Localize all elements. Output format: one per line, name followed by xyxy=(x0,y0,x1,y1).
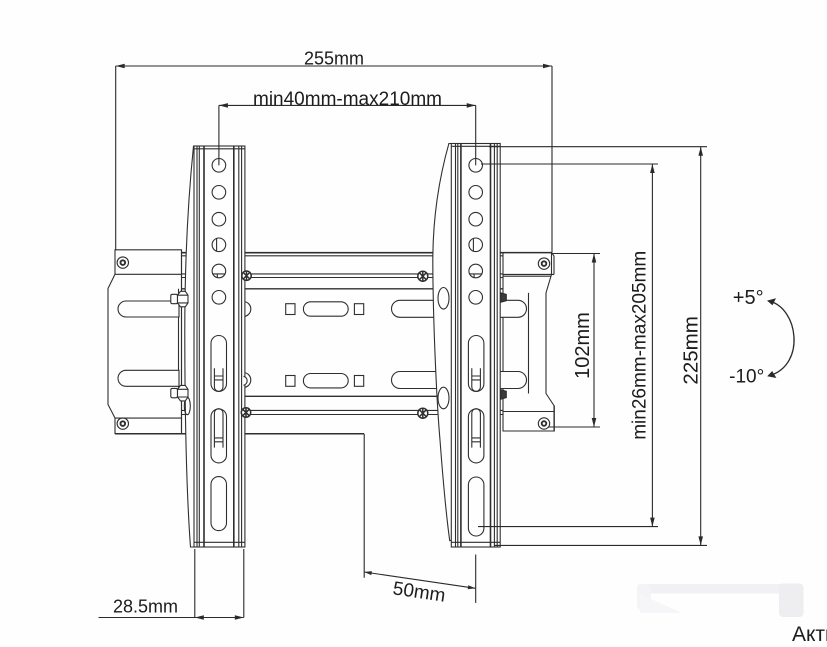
svg-text:102mm: 102mm xyxy=(572,312,594,379)
svg-text:+5°: +5° xyxy=(733,287,764,309)
svg-text:min26mm-max205mm: min26mm-max205mm xyxy=(629,251,650,440)
svg-text:28.5mm: 28.5mm xyxy=(113,597,178,617)
svg-text:255mm: 255mm xyxy=(304,49,364,69)
svg-text:225mm: 225mm xyxy=(679,316,702,384)
svg-text:min40mm-max210mm: min40mm-max210mm xyxy=(253,89,442,110)
svg-text:Актив: Актив xyxy=(792,623,827,646)
svg-text:-10°: -10° xyxy=(729,366,764,387)
